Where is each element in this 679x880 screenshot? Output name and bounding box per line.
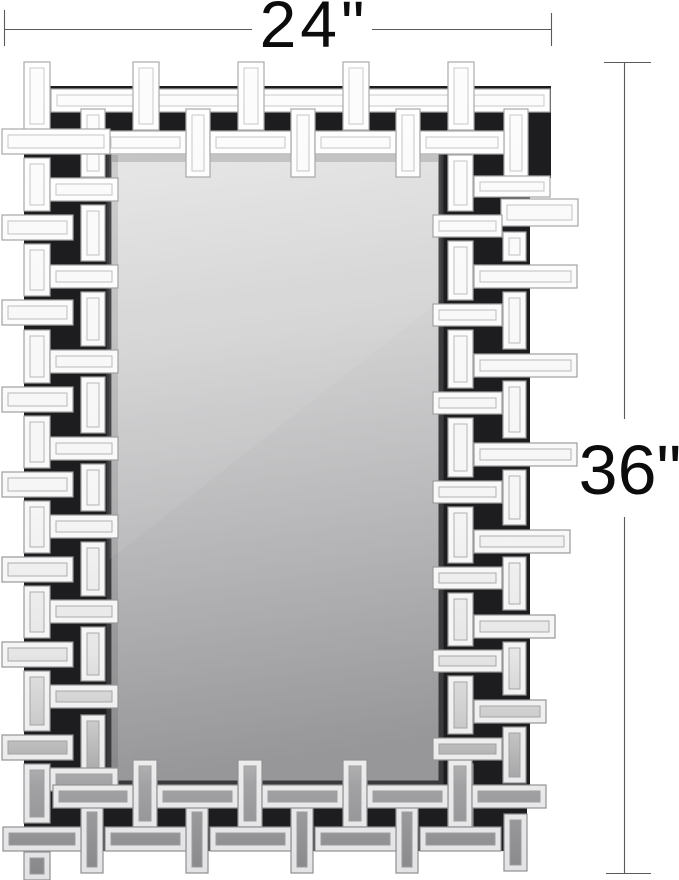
- svg-text:24": 24": [260, 0, 369, 61]
- svg-text:36": 36": [579, 431, 679, 509]
